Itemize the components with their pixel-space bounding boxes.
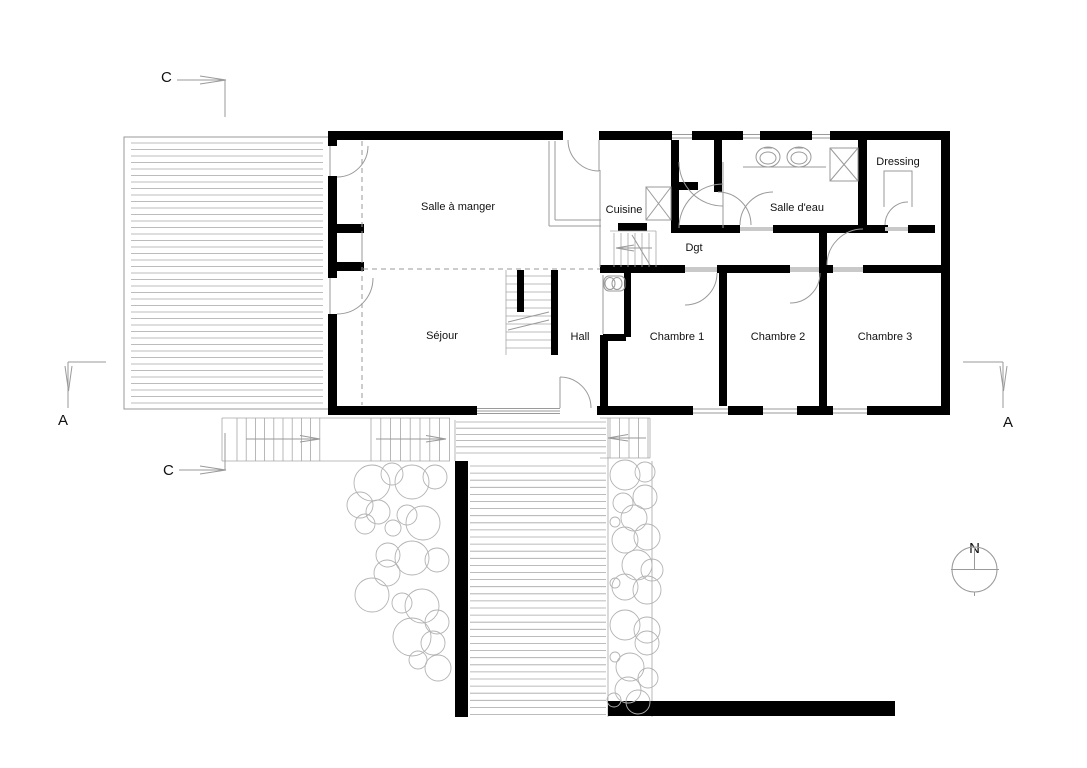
tree-icon <box>610 652 620 662</box>
deck <box>124 137 330 409</box>
tree-icon <box>374 560 400 586</box>
kitchen-stairs <box>610 231 656 267</box>
tree-icon <box>395 541 429 575</box>
walkway-west-wall <box>455 461 468 717</box>
tree-icon <box>610 578 620 588</box>
room-label-kitchen: Cuisine <box>606 204 643 216</box>
walkway <box>455 418 895 717</box>
tree-icon <box>613 493 633 513</box>
section-marker-a-left: A <box>58 362 106 429</box>
hall-stairs <box>506 270 558 355</box>
tree-cluster-right <box>607 460 663 714</box>
tree-icon <box>355 578 389 612</box>
room-label-bedroom1: Chambre 1 <box>650 331 704 343</box>
section-letter: A <box>58 412 68 429</box>
section-letter: A <box>1003 414 1013 431</box>
sink-icon-left <box>756 147 780 167</box>
room-label-hall: Hall <box>571 331 590 343</box>
section-marker-c-top: C <box>161 69 226 117</box>
duct-icon-bathroom <box>830 148 858 181</box>
bedroom-side-steps <box>600 418 650 458</box>
bedroom2-door <box>790 273 820 303</box>
tree-cluster-left <box>347 463 451 681</box>
steps-direction-arrow-east <box>608 435 646 442</box>
deck-door-south <box>337 278 373 314</box>
tree-icon <box>354 465 390 501</box>
section-marker-c-bottom: C <box>163 433 226 479</box>
bedroom3-door <box>827 229 863 265</box>
room-label-bathroom: Salle d'eau <box>770 202 824 214</box>
tree-icon <box>425 655 451 681</box>
garden-south-wall <box>608 701 895 716</box>
tree-icon <box>381 463 403 485</box>
kitchen-exterior-door <box>568 140 599 171</box>
interior-walls <box>600 140 941 406</box>
tree-icon <box>385 520 401 536</box>
tree-icon <box>397 505 417 525</box>
stair-direction-arrow <box>616 245 652 251</box>
north-compass-icon: N <box>951 540 999 596</box>
tree-icon <box>406 506 440 540</box>
steps-direction-arrow-b <box>376 436 446 443</box>
bedroom1-door <box>685 273 717 305</box>
tree-icon <box>393 618 431 656</box>
bathroom-fittings <box>743 147 858 181</box>
section-marker-a-right: A <box>963 362 1013 431</box>
tree-icon <box>638 668 658 688</box>
deck-plank-lines <box>131 143 323 403</box>
bathroom-south-door <box>740 192 773 225</box>
walkway-upper-treads <box>456 422 606 453</box>
floor-plan-drawing: Salle à manger Cuisine Séjour Hall Dgt S… <box>0 0 1087 768</box>
room-label-bedroom3: Chambre 3 <box>858 331 912 343</box>
tree-icon <box>610 517 620 527</box>
fireplace <box>328 224 364 271</box>
toilet-icon <box>604 276 625 291</box>
tree-icon <box>634 617 660 643</box>
entry-door <box>560 377 591 408</box>
room-label-bedroom2: Chambre 2 <box>751 331 805 343</box>
room-label-dressing: Dressing <box>876 156 919 168</box>
sink-icon-right <box>787 147 811 167</box>
room-label-dining: Salle à manger <box>421 201 495 213</box>
dashed-lines <box>362 141 600 405</box>
room-label-corridor: Dgt <box>685 242 702 254</box>
tree-icon <box>421 631 445 655</box>
room-labels: Salle à manger Cuisine Séjour Hall Dgt S… <box>421 156 920 343</box>
room-label-living: Séjour <box>426 330 458 342</box>
deck-door-north <box>337 146 368 177</box>
tree-icon <box>409 651 427 669</box>
tree-icon <box>392 593 412 613</box>
tree-icon <box>622 550 652 580</box>
tree-icon <box>366 500 390 524</box>
tree-icon <box>633 485 657 509</box>
floor-plan-page: Salle à manger Cuisine Séjour Hall Dgt S… <box>0 0 1087 768</box>
duct-icon-kitchen <box>646 187 671 220</box>
dressing-door <box>885 202 908 225</box>
section-letter: C <box>161 69 172 86</box>
terrace-steps <box>222 418 450 461</box>
tree-icon <box>423 465 447 489</box>
walkway-treads <box>470 466 606 715</box>
section-letter: C <box>163 462 174 479</box>
wc <box>603 275 625 334</box>
